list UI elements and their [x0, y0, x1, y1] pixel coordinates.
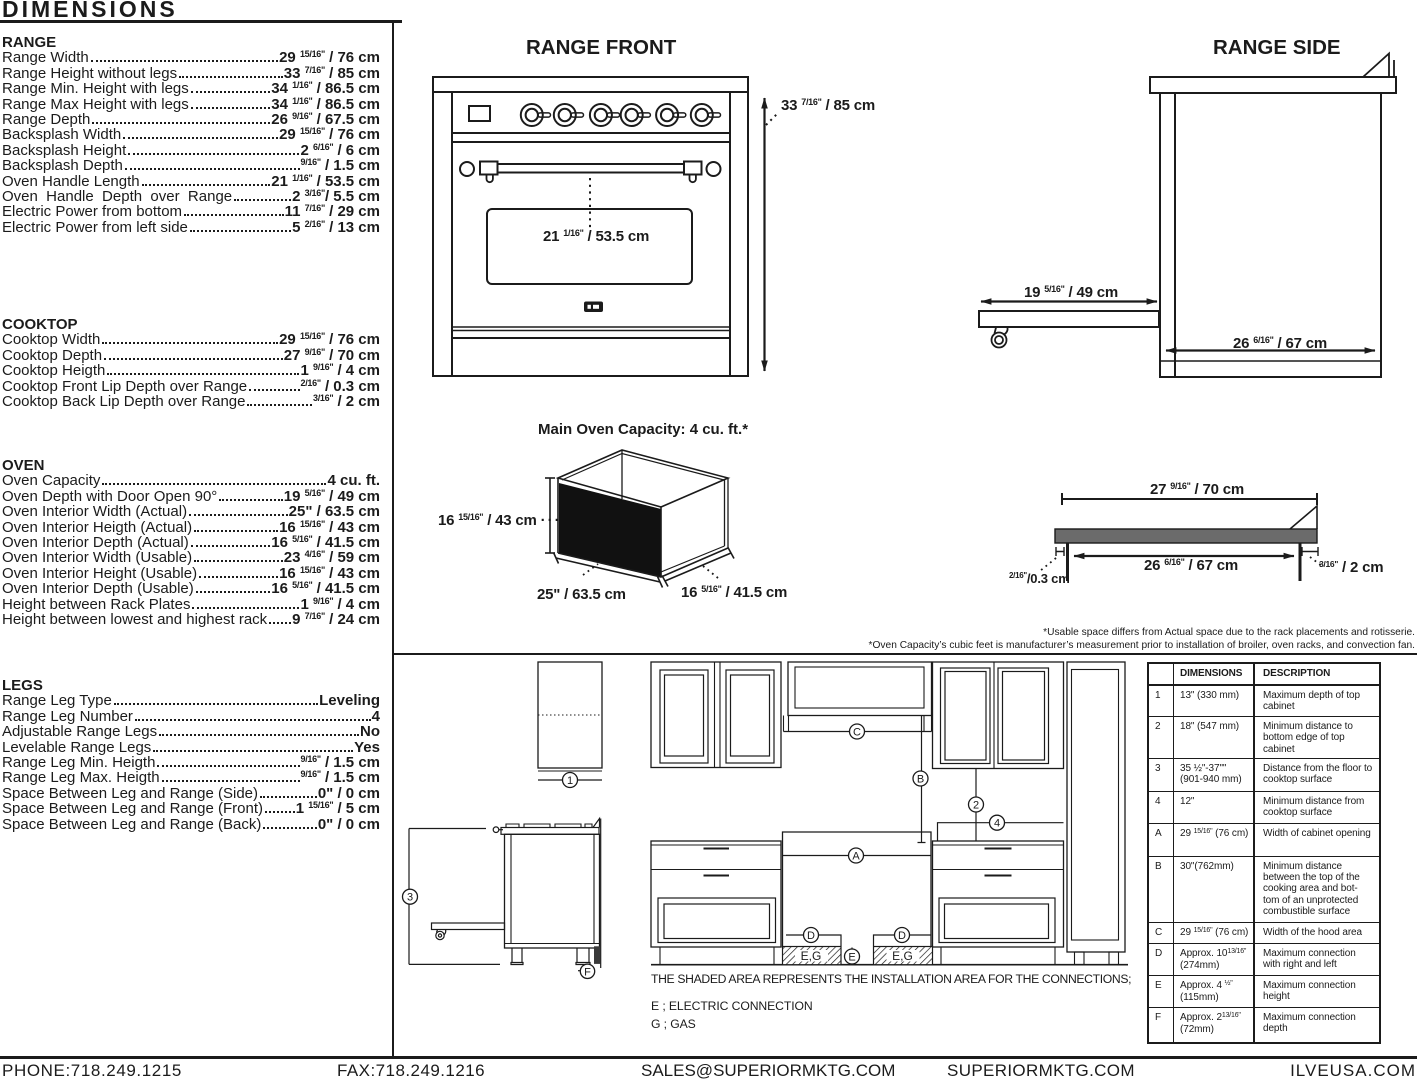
- svg-text:D: D: [807, 930, 815, 942]
- svg-text:A: A: [852, 851, 860, 863]
- svg-text:1: 1: [567, 775, 573, 787]
- svg-text:4: 4: [994, 818, 1000, 830]
- svg-text:E,G: E,G: [801, 949, 822, 963]
- svg-text:2: 2: [973, 800, 979, 812]
- svg-text:3: 3: [407, 892, 413, 904]
- svg-text:F: F: [584, 966, 591, 978]
- svg-text:E: E: [848, 952, 855, 964]
- svg-text:C: C: [853, 727, 861, 739]
- svg-text:E,G: E,G: [892, 949, 913, 963]
- svg-text:B: B: [917, 774, 924, 786]
- svg-text:D: D: [898, 930, 906, 942]
